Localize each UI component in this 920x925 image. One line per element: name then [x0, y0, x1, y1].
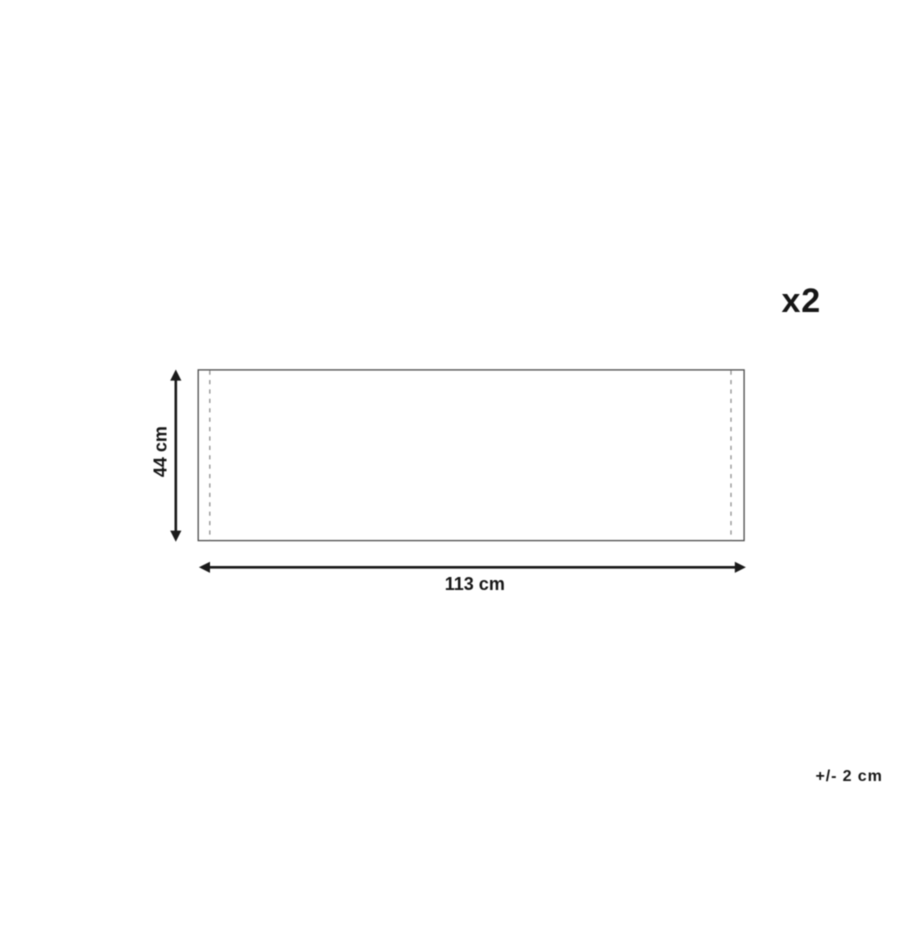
- svg-text:x2: x2: [782, 282, 821, 320]
- svg-text:44 cm: 44 cm: [151, 426, 171, 477]
- svg-text:+/- 2 cm: +/- 2 cm: [816, 768, 883, 785]
- svg-text:113 cm: 113 cm: [445, 574, 505, 594]
